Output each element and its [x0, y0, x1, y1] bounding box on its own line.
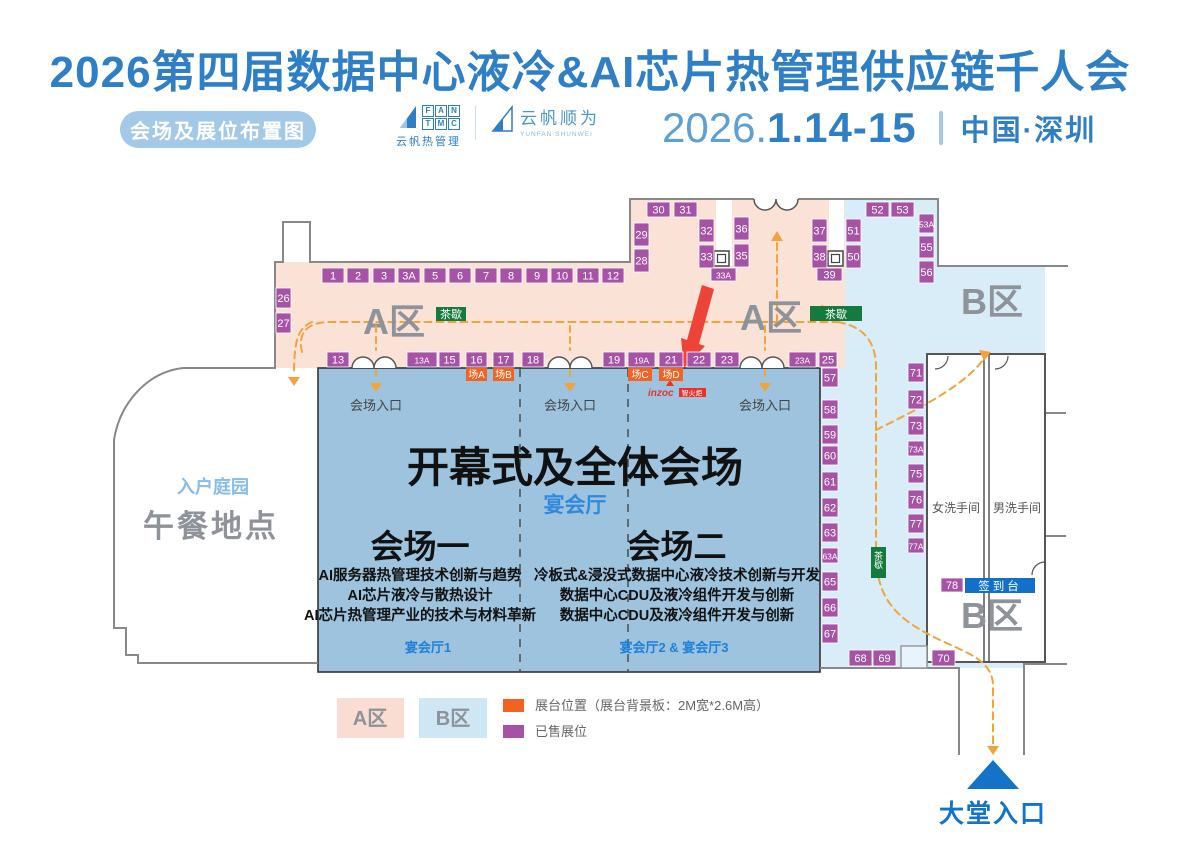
svg-text:31: 31	[679, 205, 691, 217]
svg-text:5: 5	[432, 271, 438, 283]
svg-text:3A: 3A	[402, 271, 416, 283]
svg-text:21: 21	[665, 355, 677, 367]
svg-text:11: 11	[582, 271, 593, 283]
main-hall	[318, 368, 820, 672]
svg-text:8: 8	[508, 271, 514, 283]
svg-text:77: 77	[910, 519, 922, 531]
booth-61: 61	[822, 472, 838, 491]
tea-break-badge: 茶歇	[810, 306, 862, 321]
booth-12: 12	[602, 268, 624, 283]
tea-break-badge-vertical: 茶歇	[871, 547, 886, 578]
booth-25: 25	[819, 352, 837, 367]
booth-77A: 77A	[908, 538, 924, 553]
svg-text:12: 12	[607, 271, 619, 283]
booth-73A: 73A	[908, 441, 924, 456]
booth-21: 21	[659, 352, 683, 367]
svg-text:场A: 场A	[468, 368, 485, 381]
stage-badge-场C: 场C	[628, 368, 652, 381]
booth-33A: 33A	[711, 268, 736, 281]
lunch-label: 午餐地点	[143, 509, 279, 544]
booth-5: 5	[424, 268, 446, 283]
booth-16: 16	[466, 352, 487, 367]
booth-28: 28	[634, 249, 649, 272]
svg-text:36: 36	[735, 224, 747, 236]
booth-66: 66	[822, 598, 838, 617]
svg-text:场D: 场D	[662, 368, 679, 381]
svg-text:50: 50	[847, 252, 859, 264]
booth-53: 53	[891, 202, 914, 217]
booth-13: 13	[327, 352, 349, 367]
svg-text:65: 65	[824, 577, 836, 589]
legend-booth-label: 展台位置（展台背景板：2M宽*2.6M高）	[535, 698, 769, 713]
svg-text:26: 26	[277, 293, 289, 305]
booth-11: 11	[577, 268, 599, 283]
svg-text:3: 3	[381, 271, 387, 283]
svg-text:51: 51	[847, 226, 859, 238]
booth-3A: 3A	[398, 268, 420, 283]
floorplan-map: 女洗手间 男洗手间	[0, 0, 1180, 843]
booth-15: 15	[439, 352, 460, 367]
stage-badge-场D: 场D	[659, 368, 683, 381]
svg-text:73A: 73A	[908, 445, 923, 455]
booth-7: 7	[475, 268, 497, 283]
booth-10: 10	[551, 268, 573, 283]
svg-text:73: 73	[910, 421, 922, 433]
booth-50: 50	[846, 245, 861, 268]
svg-text:30: 30	[652, 205, 664, 217]
stage-badge-场B: 场B	[493, 368, 514, 381]
banquet-label: 宴会厅	[544, 493, 607, 517]
svg-text:53A: 53A	[919, 220, 934, 230]
svg-text:32: 32	[700, 226, 712, 238]
svg-text:72: 72	[910, 395, 922, 407]
zone-b-label: B区	[961, 281, 1023, 322]
booth-26: 26	[276, 288, 291, 308]
booth-19: 19	[603, 352, 625, 367]
zone-a-label: A区	[363, 301, 425, 342]
booth-70: 70	[932, 650, 955, 666]
svg-text:28: 28	[635, 256, 647, 268]
hall-main-title: 开幕式及全体会场	[407, 444, 743, 491]
booth-72: 72	[908, 390, 924, 409]
svg-text:75: 75	[910, 469, 922, 481]
booth-36: 36	[734, 217, 749, 240]
booth-2: 2	[347, 268, 369, 283]
venue2-topic: 数据中心CDU及液冷组件开发与创新	[560, 606, 795, 624]
booth-78: 78	[941, 578, 963, 592]
svg-text:68: 68	[854, 653, 866, 665]
legend: A区 B区 展台位置（展台背景板：2M宽*2.6M高） 已售展位	[337, 698, 769, 739]
svg-text:78: 78	[946, 580, 958, 592]
svg-text:23: 23	[721, 355, 733, 367]
svg-text:70: 70	[937, 653, 949, 665]
svg-text:签到台: 签到台	[978, 579, 1022, 593]
pillar-icon	[828, 251, 843, 266]
svg-text:71: 71	[910, 368, 922, 380]
svg-text:13: 13	[332, 355, 344, 367]
booth-53A: 53A	[919, 214, 934, 233]
svg-text:38: 38	[813, 252, 825, 264]
svg-text:7: 7	[483, 271, 489, 283]
entrance-label: 会场入口	[544, 398, 596, 413]
restroom-male-label: 男洗手间	[993, 501, 1041, 515]
booth-35: 35	[734, 244, 749, 267]
booth-73: 73	[908, 416, 924, 435]
booth-57: 57	[822, 368, 838, 387]
svg-text:67: 67	[824, 629, 836, 641]
booth-65: 65	[822, 572, 838, 591]
svg-text:56: 56	[920, 267, 932, 279]
booth-8: 8	[500, 268, 522, 283]
booth-71: 71	[908, 363, 924, 382]
svg-text:53: 53	[896, 205, 908, 217]
legend-booth-swatch	[503, 699, 524, 712]
svg-text:19: 19	[608, 355, 620, 367]
booth-23A: 23A	[789, 352, 816, 367]
svg-text:63: 63	[824, 528, 836, 540]
svg-text:76: 76	[910, 495, 922, 507]
svg-text:25: 25	[822, 355, 834, 367]
venue1-room-label: 宴会厅1	[405, 640, 451, 655]
svg-text:15: 15	[443, 355, 455, 367]
svg-text:场C: 场C	[631, 368, 648, 381]
booth-3: 3	[373, 268, 395, 283]
booth-33: 33	[699, 245, 714, 268]
svg-text:62: 62	[824, 503, 836, 515]
pillar-icon	[714, 251, 729, 266]
venue1-topic: AI芯片热管理产业的技术与材料革新	[304, 606, 536, 624]
svg-text:茶歇: 茶歇	[440, 308, 462, 321]
booth-69: 69	[873, 650, 896, 666]
booth-19A: 19A	[628, 352, 655, 367]
tea-break-badge: 茶歇	[436, 307, 466, 321]
lobby-entrance-label: 大堂入口	[939, 799, 1047, 828]
svg-text:27: 27	[277, 318, 289, 330]
svg-text:10: 10	[556, 271, 568, 283]
booth-68: 68	[849, 650, 872, 666]
svg-text:茶歇: 茶歇	[873, 550, 883, 570]
booth-52: 52	[866, 202, 889, 217]
venue2-topic: 冷板式&浸没式数据中心液冷技术创新与开发	[534, 566, 820, 584]
svg-text:33: 33	[700, 252, 712, 264]
svg-text:23A: 23A	[795, 356, 810, 366]
booth-31: 31	[674, 202, 697, 217]
booth-51: 51	[846, 219, 861, 242]
booth-22: 22	[687, 352, 711, 367]
svg-text:57: 57	[824, 373, 836, 385]
svg-text:66: 66	[824, 603, 836, 615]
svg-text:18: 18	[527, 355, 539, 367]
booth-76: 76	[908, 490, 924, 509]
lobby-entrance: 大堂入口	[939, 760, 1047, 828]
svg-text:19A: 19A	[634, 356, 649, 366]
lobby-arrow-icon	[967, 760, 1019, 789]
booth-60: 60	[822, 446, 838, 465]
entrance-label: 会场入口	[739, 398, 791, 413]
svg-text:茶歇: 茶歇	[825, 308, 847, 321]
svg-text:17: 17	[497, 355, 509, 367]
legend-sold-label: 已售展位	[535, 724, 587, 739]
booth-27: 27	[276, 313, 291, 333]
venue1-topic: AI服务器热管理技术创新与趋势	[319, 566, 522, 584]
restroom-female-label: 女洗手间	[932, 500, 980, 515]
stage-badge-场A: 场A	[466, 368, 487, 381]
booth-77: 77	[908, 514, 924, 533]
svg-text:63A: 63A	[822, 552, 837, 562]
svg-text:2: 2	[355, 271, 361, 283]
booth-6: 6	[449, 268, 471, 283]
venue2-topic: 数据中心CDU及液冷组件开发与创新	[560, 586, 795, 604]
booth-23: 23	[715, 352, 739, 367]
booth-62: 62	[822, 498, 838, 517]
legend-sold-swatch	[503, 725, 524, 738]
svg-text:60: 60	[824, 451, 836, 463]
svg-text:智火炬: 智火炬	[682, 389, 703, 398]
booth-63A: 63A	[822, 548, 838, 563]
booth-55: 55	[919, 236, 934, 258]
svg-text:22: 22	[693, 355, 705, 367]
venue1-title: 会场一	[371, 528, 470, 565]
svg-text:58: 58	[824, 405, 836, 417]
booth-9: 9	[526, 268, 548, 283]
svg-text:inzoc: inzoc	[648, 388, 674, 399]
zone-b-label: B区	[961, 595, 1023, 636]
booth-37: 37	[812, 219, 827, 242]
zone-a-label: A区	[740, 297, 802, 338]
venue2-room-label: 宴会厅2 & 宴会厅3	[619, 640, 728, 655]
checkin-sign: 签到台	[965, 578, 1035, 593]
booth-38: 38	[812, 245, 827, 268]
legend-zone-b-label: B区	[436, 708, 470, 730]
booth-63: 63	[822, 523, 838, 542]
svg-text:59: 59	[824, 430, 836, 442]
svg-text:77A: 77A	[908, 542, 923, 552]
booth-18: 18	[522, 352, 544, 367]
booth-1: 1	[322, 268, 344, 283]
booth-32: 32	[699, 219, 714, 242]
svg-text:29: 29	[635, 230, 647, 242]
venue1-topic: AI芯片液冷与散热设计	[348, 586, 493, 604]
booth-75: 75	[908, 464, 924, 483]
svg-text:场B: 场B	[495, 368, 512, 381]
svg-text:37: 37	[813, 226, 825, 238]
svg-text:6: 6	[457, 271, 463, 283]
stair-box	[901, 646, 927, 668]
booth-30: 30	[647, 202, 670, 217]
svg-text:61: 61	[824, 477, 836, 489]
svg-text:9: 9	[534, 271, 540, 283]
svg-text:35: 35	[735, 251, 747, 263]
entrance-label: 会场入口	[350, 398, 402, 413]
svg-text:52: 52	[871, 205, 883, 217]
booth-56: 56	[919, 261, 934, 283]
booth-17: 17	[493, 352, 514, 367]
booth-13A: 13A	[407, 352, 437, 367]
booth-59: 59	[822, 425, 838, 444]
svg-text:69: 69	[878, 653, 890, 665]
poster: 2026第四届数据中心液冷&AI芯片热管理供应链千人会 会场及展位布置图 F A…	[0, 0, 1180, 843]
booth-58: 58	[822, 400, 838, 419]
garden-label: 入户庭园	[177, 476, 249, 497]
booth-67: 67	[822, 624, 838, 643]
legend-zone-a-label: A区	[353, 708, 387, 730]
svg-text:1: 1	[330, 271, 336, 283]
booth-39: 39	[817, 268, 842, 282]
svg-text:13A: 13A	[414, 356, 429, 366]
svg-text:39: 39	[823, 270, 835, 282]
booth-29: 29	[634, 223, 649, 246]
venue2-title: 会场二	[628, 528, 727, 565]
svg-text:33A: 33A	[716, 271, 731, 281]
svg-text:16: 16	[470, 355, 482, 367]
svg-text:55: 55	[920, 242, 932, 254]
